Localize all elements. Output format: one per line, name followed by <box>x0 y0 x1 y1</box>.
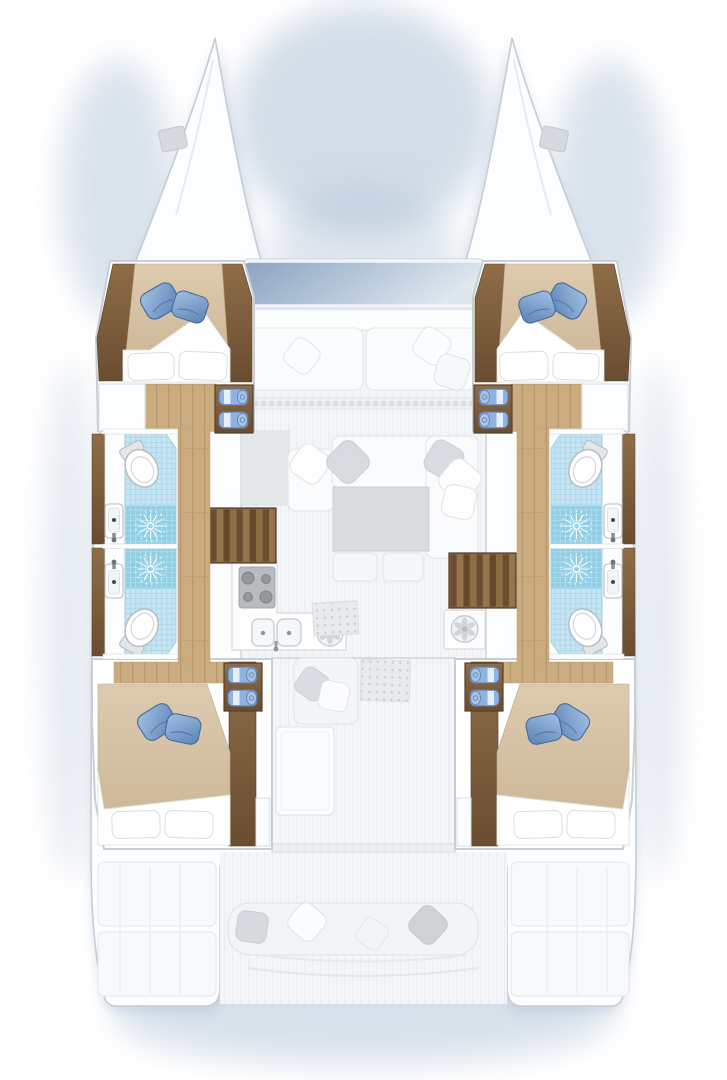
platform-step <box>98 932 216 996</box>
pillow <box>440 483 478 521</box>
bathroom-wall <box>103 654 180 659</box>
cabin-floor <box>146 384 216 431</box>
catamaran-floorplan <box>0 0 727 1080</box>
washbasin <box>105 560 123 598</box>
sink-drain <box>261 631 265 635</box>
wash-port-side <box>44 360 96 880</box>
pillow <box>235 910 270 945</box>
aft-salon-table <box>276 727 334 815</box>
window-sill-track <box>249 398 478 409</box>
salon-window-band <box>241 261 486 306</box>
bathroom-wall <box>103 429 180 434</box>
washbasin <box>105 504 123 542</box>
hull-locker <box>92 548 105 656</box>
forward-bench-backrest <box>247 310 480 330</box>
port-forward-cabin <box>96 261 254 433</box>
towel-shelf <box>215 385 253 433</box>
hull-corridor-floor <box>178 428 210 664</box>
towel-shelf <box>224 663 262 711</box>
port-aft-cabin <box>92 659 272 849</box>
galley-faucet <box>275 641 278 647</box>
port-companionway-stairs <box>209 508 276 563</box>
wash-starboard-side <box>631 360 683 880</box>
white-pillow <box>165 810 214 838</box>
starboard-forward-cabin <box>473 261 631 433</box>
sink-drain <box>287 631 291 635</box>
utility-cabinet <box>444 610 485 649</box>
ottoman <box>383 553 423 581</box>
cockpit-door-sill <box>272 844 455 852</box>
starboard-heads <box>517 428 635 664</box>
cabin-locker <box>99 384 145 431</box>
galley-faucet-base <box>274 647 279 652</box>
pillow <box>317 679 351 713</box>
ottoman <box>333 553 377 581</box>
white-pillow <box>128 352 175 381</box>
white-pillow <box>179 351 228 381</box>
bow-hatch <box>158 126 188 153</box>
door-mat <box>360 659 410 702</box>
port-heads <box>92 428 210 664</box>
floorplan-canvas <box>0 0 727 1080</box>
cabin-locker <box>256 798 270 846</box>
starboard-companionway-stairs <box>449 553 516 608</box>
starboard-aft-cabin <box>455 659 635 849</box>
salon-table <box>333 487 429 551</box>
door-mat <box>312 601 359 636</box>
nav-counter <box>241 431 289 505</box>
bathroom-divider-wall <box>103 544 178 549</box>
cabin-floor <box>114 662 228 683</box>
platform-step <box>98 862 216 926</box>
hull-locker <box>92 434 105 544</box>
white-pillow <box>112 810 161 838</box>
washer-round-appliance <box>451 616 478 643</box>
